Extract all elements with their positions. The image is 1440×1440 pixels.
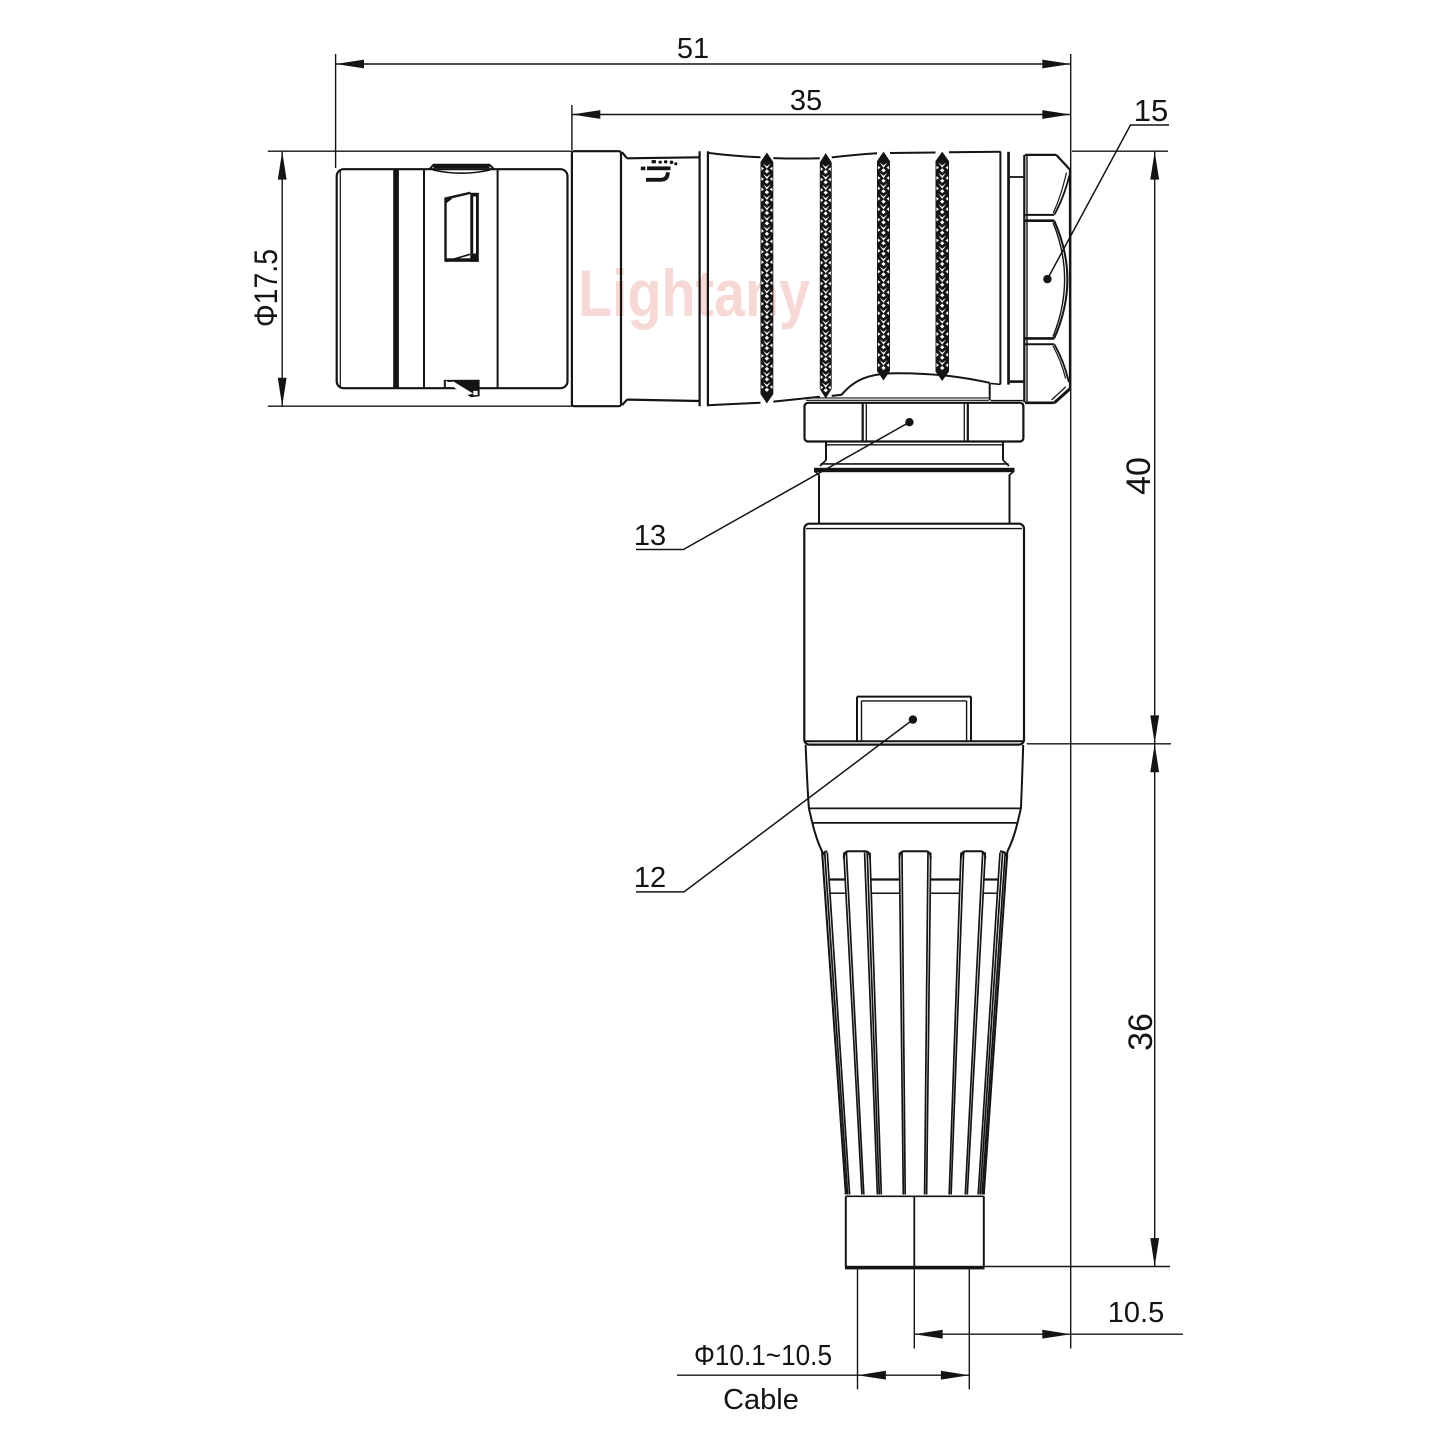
svg-text:12: 12 (634, 862, 666, 894)
svg-text:51: 51 (677, 33, 709, 65)
svg-text:15: 15 (1134, 93, 1168, 128)
svg-text:35: 35 (790, 85, 822, 117)
svg-text:40: 40 (1120, 457, 1158, 495)
svg-text:Φ17.5: Φ17.5 (248, 249, 284, 327)
svg-text:36: 36 (1122, 1013, 1160, 1051)
svg-text:10.5: 10.5 (1108, 1297, 1164, 1329)
svg-text:Lightany: Lightany (578, 256, 810, 330)
svg-text:13: 13 (634, 520, 666, 552)
svg-text:Φ10.1~10.5: Φ10.1~10.5 (694, 1340, 832, 1372)
svg-text:Cable: Cable (723, 1384, 799, 1416)
